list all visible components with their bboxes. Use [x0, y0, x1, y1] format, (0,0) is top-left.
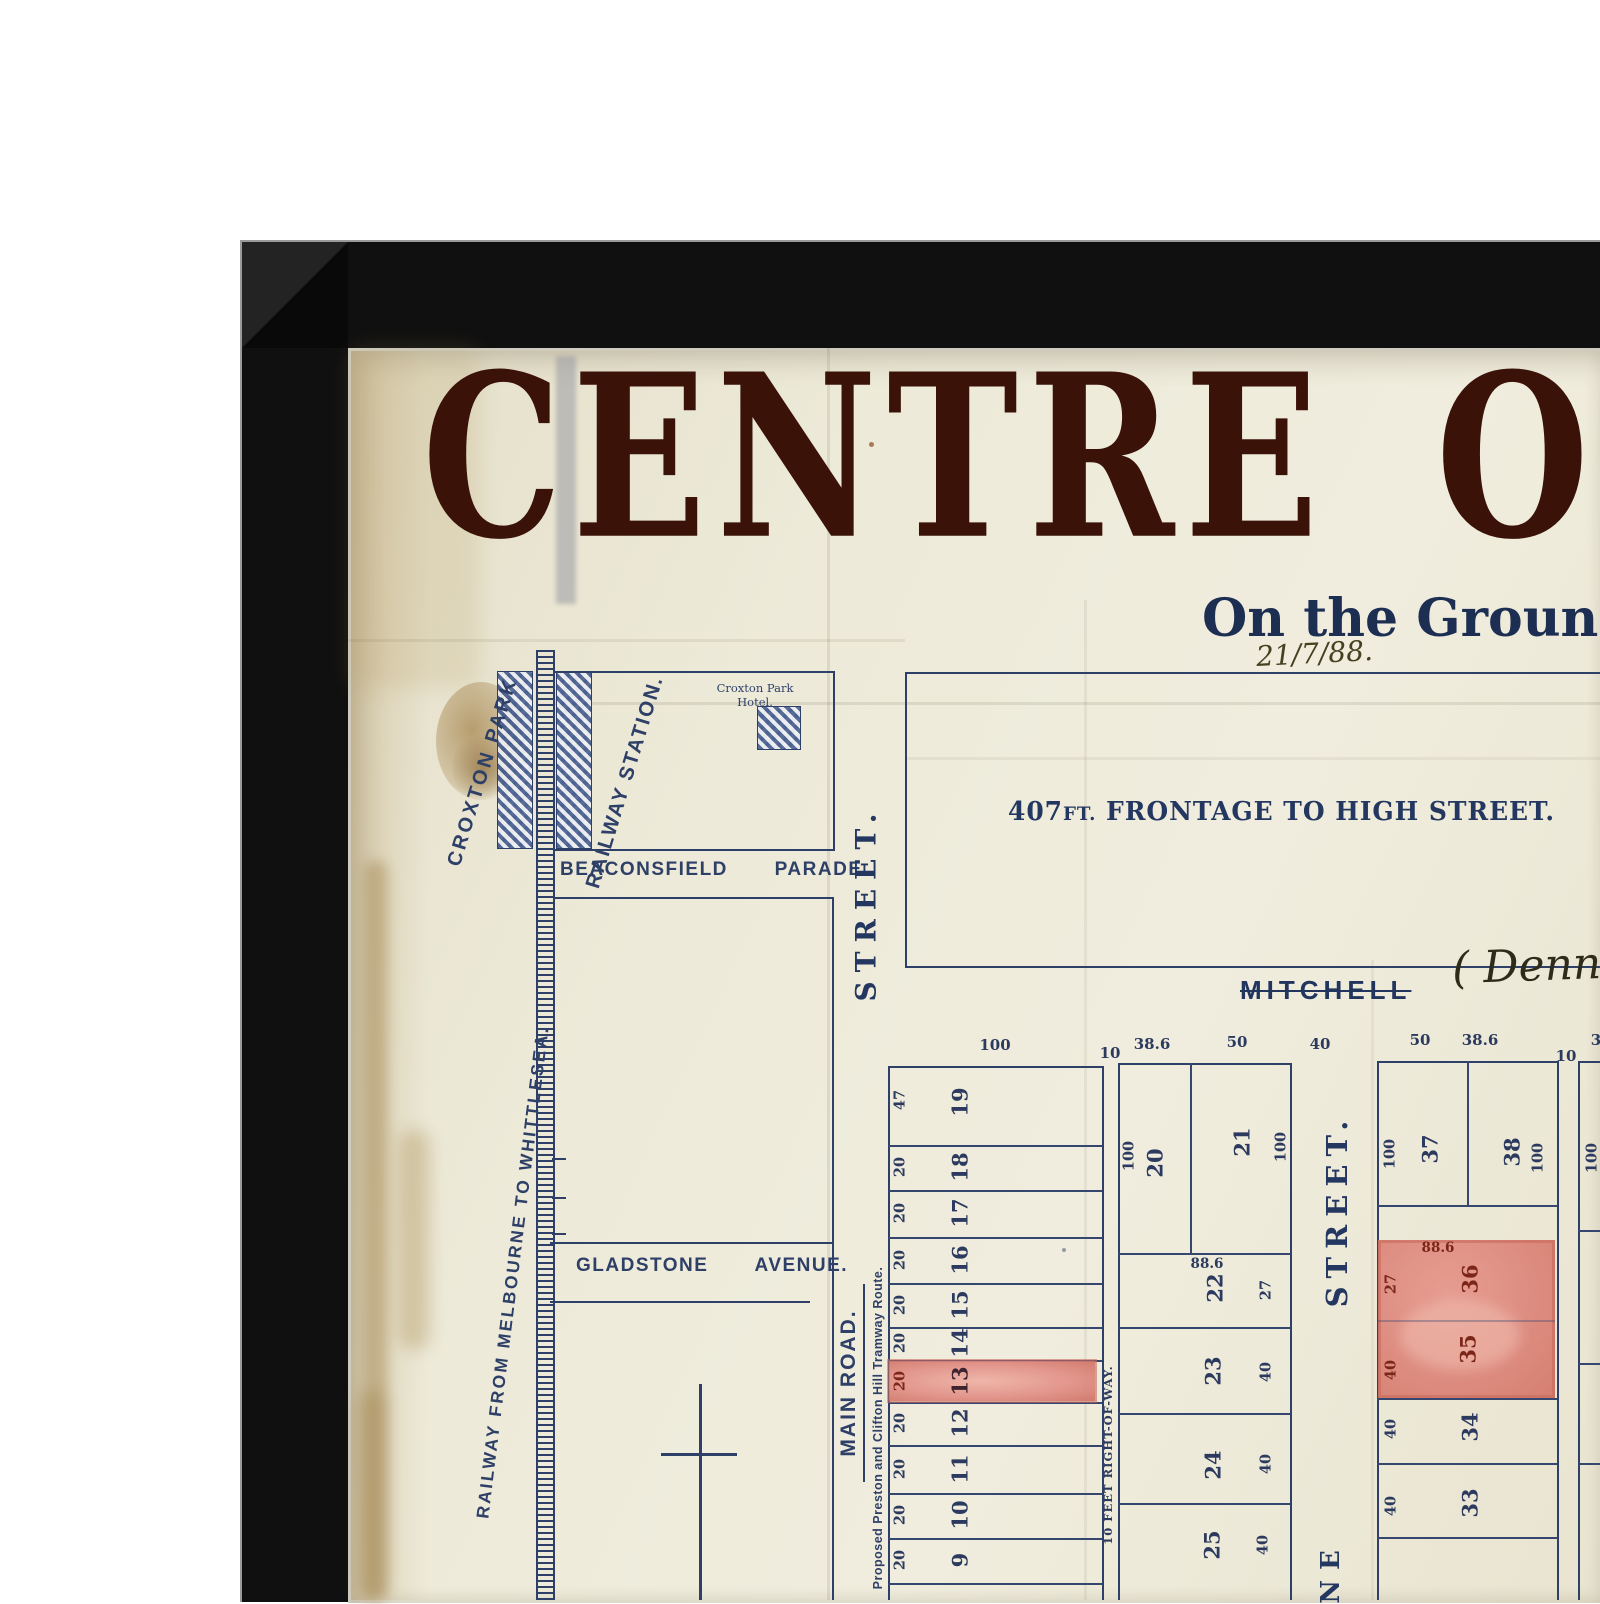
mid-block-east: [1290, 1063, 1292, 1600]
map-line: [888, 1190, 1102, 1192]
map-line: [1118, 1327, 1290, 1329]
gladstone-south-line: [550, 1301, 810, 1303]
map-line: [1578, 1463, 1600, 1465]
cross-mark-vertical: [699, 1384, 702, 1600]
lot-top-measure: 88.6: [1191, 1256, 1224, 1272]
parade-street-line: [553, 897, 832, 899]
lot-side-measure: 20: [892, 1459, 909, 1479]
lot-depth-measure: 100: [1382, 1139, 1399, 1169]
ink-speck: [869, 442, 874, 447]
map-line: [888, 1145, 1102, 1147]
lot-side-measure: 20: [892, 1505, 909, 1525]
map-line: [1578, 1363, 1600, 1365]
stain-streak: [398, 1130, 430, 1350]
map-line: [888, 1538, 1102, 1540]
street-width-measure: 40: [1310, 1035, 1331, 1053]
poster-headline: CENTRE OF: [422, 345, 1600, 570]
railway-siding-tick: [552, 1197, 566, 1199]
lot-number: 15: [948, 1290, 973, 1319]
main-road-label: MAIN ROAD.: [837, 1309, 861, 1456]
map-line: [888, 1583, 1102, 1585]
lot-side-measure: 40: [1383, 1496, 1400, 1516]
lot-side-measure: 20: [892, 1295, 909, 1315]
right-block-east: [1557, 1061, 1559, 1600]
railway-siding-tick: [552, 1233, 566, 1235]
mitchell-street-name: MITCHELL: [1240, 975, 1411, 1006]
paper-crease: [905, 757, 1600, 760]
map-line: [1378, 1320, 1555, 1322]
main-road-west-line: [832, 897, 834, 1600]
map-line: [1467, 1061, 1469, 1205]
lot-number: 21: [1230, 1127, 1255, 1156]
lot-width-measure: 38.6: [1134, 1035, 1171, 1053]
croxton-hotel-line1: Croxton Park: [700, 681, 810, 695]
paper-crease: [348, 639, 905, 642]
lot-number: 20: [1143, 1148, 1168, 1177]
frontage-unit: FT.: [1063, 803, 1096, 825]
lot-number: 19: [948, 1087, 973, 1116]
lot-side-measure: 47: [892, 1090, 909, 1110]
lot-side-measure: 20: [892, 1371, 909, 1391]
lot-depth-measure: 100: [1530, 1143, 1547, 1173]
paper-crease: [1371, 960, 1374, 1600]
map-line: [888, 1283, 1102, 1285]
lot-depth-measure: 100: [1273, 1132, 1290, 1162]
lot-number: 18: [948, 1152, 973, 1181]
map-line: [1118, 1413, 1290, 1415]
frontage-measure: 100: [979, 1036, 1010, 1054]
lot-width-measure: 50: [1227, 1033, 1248, 1051]
lot-side-measure: 27: [1383, 1274, 1400, 1294]
lot-number: 24: [1201, 1450, 1226, 1479]
lot-number: 14: [948, 1328, 973, 1357]
lot-side-measure: 20: [892, 1203, 909, 1223]
mid-block-north: [1118, 1063, 1292, 1065]
lot-depth-measure: 100: [1584, 1143, 1600, 1173]
map-line: [888, 1327, 1102, 1329]
lot-number: 35: [1456, 1334, 1481, 1363]
lot-number: 17: [948, 1198, 973, 1227]
map-line: [1377, 1205, 1557, 1207]
gladstone-north-line: [550, 1242, 832, 1244]
hotel-hatch-mark: [757, 706, 801, 750]
lot-number: 22: [1203, 1273, 1228, 1302]
lot-side-measure: 20: [892, 1250, 909, 1270]
lot-number: 33: [1458, 1488, 1483, 1517]
lot-side-measure: 27: [1258, 1280, 1275, 1300]
lot-side-measure: 40: [1258, 1362, 1275, 1382]
cross-street-label: STREET.: [1320, 1113, 1354, 1308]
gap-measure: 10: [1100, 1044, 1121, 1062]
lot-number: 12: [948, 1408, 973, 1437]
lot-number: 10: [948, 1500, 973, 1529]
lot-number: 34: [1458, 1412, 1483, 1441]
stain-streak: [358, 1390, 386, 1600]
lot-number: 37: [1418, 1134, 1443, 1163]
railway-siding-tick: [552, 1158, 566, 1160]
lot-number: 13: [948, 1366, 973, 1395]
map-line: [1377, 1463, 1557, 1465]
lot-number: 23: [1201, 1356, 1226, 1385]
lot-side-measure: 40: [1383, 1419, 1400, 1439]
lot-width-measure: 50: [1410, 1031, 1431, 1049]
lot-side-measure: 40: [1383, 1360, 1400, 1380]
map-line: [1377, 1398, 1557, 1400]
lot-side-measure: 20: [892, 1413, 909, 1433]
ink-speck: [1062, 1248, 1066, 1252]
lot-number: 25: [1200, 1530, 1225, 1559]
lot-side-measure: 20: [892, 1550, 909, 1570]
lot-number: 16: [948, 1245, 973, 1274]
fold-grey-streak: [556, 356, 576, 604]
lot-side-measure: 20: [892, 1333, 909, 1353]
far-block-west: [1578, 1061, 1580, 1600]
left-block-north: [888, 1066, 1104, 1068]
paper-crease: [1084, 600, 1087, 1600]
frontage-note: 407FT. FRONTAGE TO HIGH STREET.: [1008, 797, 1555, 827]
map-line: [888, 1445, 1102, 1447]
frontage-text: FRONTAGE TO HIGH STREET.: [1096, 797, 1555, 827]
map-line: [1578, 1230, 1600, 1232]
map-line: [888, 1237, 1102, 1239]
lot-side-measure: 20: [892, 1157, 909, 1177]
gap-measure: 10: [1556, 1047, 1577, 1065]
far-block-north: [1578, 1061, 1600, 1063]
lot-number: 11: [948, 1454, 973, 1483]
high-street-label: STREET.: [850, 805, 883, 1002]
cross-street-name-partial: NE: [1316, 1540, 1346, 1604]
big-block-north-line: [905, 672, 1600, 674]
lot-side-measure: 40: [1255, 1535, 1272, 1555]
tramway-route-label: Proposed Preston and Clifton Hill Tramwa…: [871, 1267, 885, 1590]
lot-depth-measure: 100: [1121, 1141, 1138, 1171]
right-of-way-label: 10 FEET RIGHT-OF-WAY.: [1101, 1365, 1115, 1544]
map-line: [888, 1402, 1102, 1404]
frontage-number: 407: [1008, 797, 1063, 827]
highlighted-lot-13: [889, 1361, 1095, 1401]
lot-width-measure: 3: [1591, 1031, 1600, 1049]
map-line: [1118, 1503, 1290, 1505]
frame-mitre-corner: [242, 242, 348, 348]
lot-number: 38: [1500, 1137, 1525, 1166]
lot-side-measure: 40: [1258, 1454, 1275, 1474]
gladstone-avenue-label: GLADSTONE AVENUE.: [576, 1255, 848, 1277]
beaconsfield-parade-label: BEACONSFIELD PARADE.: [560, 859, 869, 881]
lot-number: 36: [1458, 1264, 1483, 1293]
map-line: [1190, 1063, 1192, 1253]
map-line: [1118, 1253, 1290, 1255]
big-block-west-line: [905, 672, 907, 966]
map-line: [1377, 1537, 1557, 1539]
map-line: [888, 1493, 1102, 1495]
handwritten-date: 21/7/88.: [1255, 634, 1373, 673]
cross-mark-horizontal: [661, 1453, 737, 1456]
lot-width-measure: 38.6: [1462, 1031, 1499, 1049]
lot-top-measure: 88.6: [1422, 1240, 1455, 1256]
lot-number: 9: [948, 1553, 973, 1568]
mitchell-handwritten-annotation: ( Dennis: [1451, 937, 1600, 994]
main-road-underline: [863, 1284, 865, 1482]
